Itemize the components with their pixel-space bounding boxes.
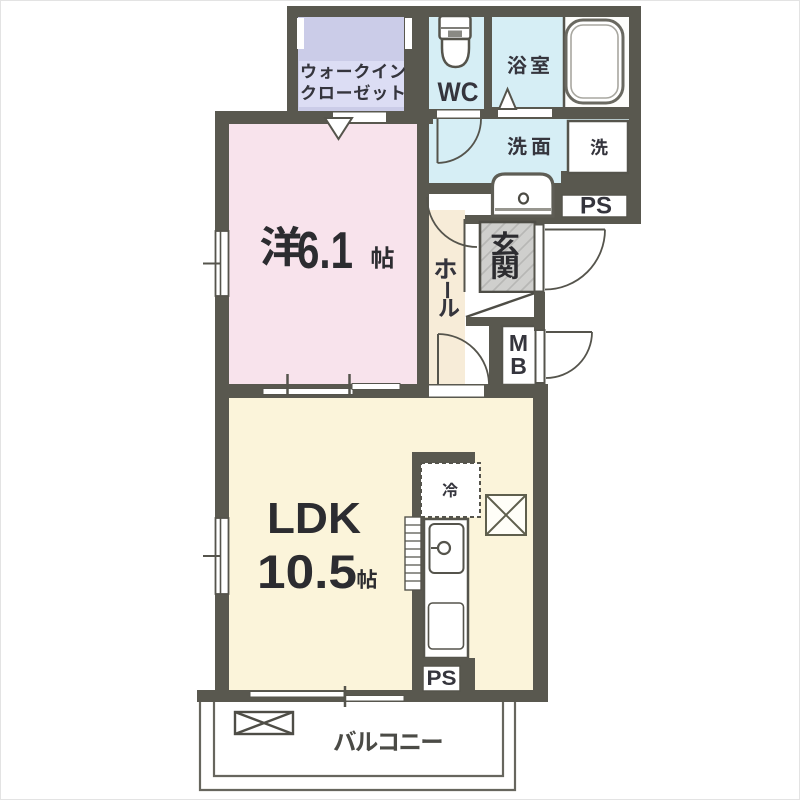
svg-text:B: B: [510, 353, 527, 379]
svg-text:LDK: LDK: [267, 494, 361, 543]
svg-text:WC: WC: [438, 77, 479, 107]
svg-text:PS: PS: [580, 193, 612, 220]
svg-text:PS: PS: [427, 667, 457, 690]
svg-text:10.5: 10.5: [257, 545, 357, 598]
svg-text:6.1: 6.1: [297, 222, 353, 280]
